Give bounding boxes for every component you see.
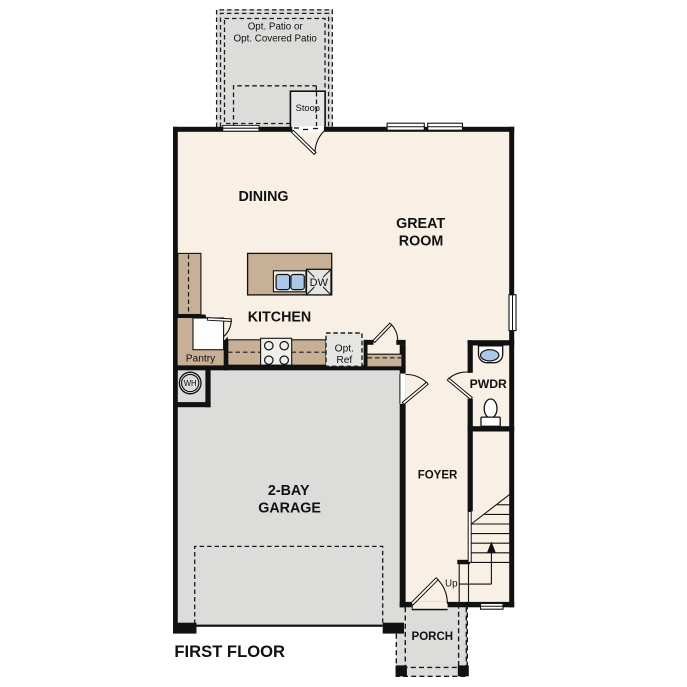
svg-text:GREAT: GREAT	[396, 216, 445, 232]
svg-text:WH: WH	[184, 379, 197, 388]
svg-text:FOYER: FOYER	[418, 469, 458, 481]
svg-text:DINING: DINING	[238, 189, 288, 205]
svg-text:Opt. Covered Patio: Opt. Covered Patio	[234, 33, 318, 44]
svg-text:Stoop: Stoop	[296, 103, 320, 113]
svg-text:PORCH: PORCH	[412, 631, 454, 643]
svg-text:2-BAY: 2-BAY	[268, 483, 310, 499]
svg-text:KITCHEN: KITCHEN	[248, 310, 312, 326]
svg-text:Pantry: Pantry	[186, 354, 216, 365]
svg-text:Opt. Patio or: Opt. Patio or	[248, 21, 304, 32]
svg-text:Up: Up	[445, 579, 458, 590]
svg-text:FIRST FLOOR: FIRST FLOOR	[174, 642, 285, 661]
svg-text:Opt.: Opt.	[335, 344, 354, 355]
svg-text:Ref: Ref	[336, 355, 352, 366]
svg-text:GARAGE: GARAGE	[258, 500, 321, 516]
svg-text:PWDR: PWDR	[470, 377, 507, 391]
svg-text:ROOM: ROOM	[399, 234, 443, 250]
svg-text:DW: DW	[310, 277, 329, 289]
